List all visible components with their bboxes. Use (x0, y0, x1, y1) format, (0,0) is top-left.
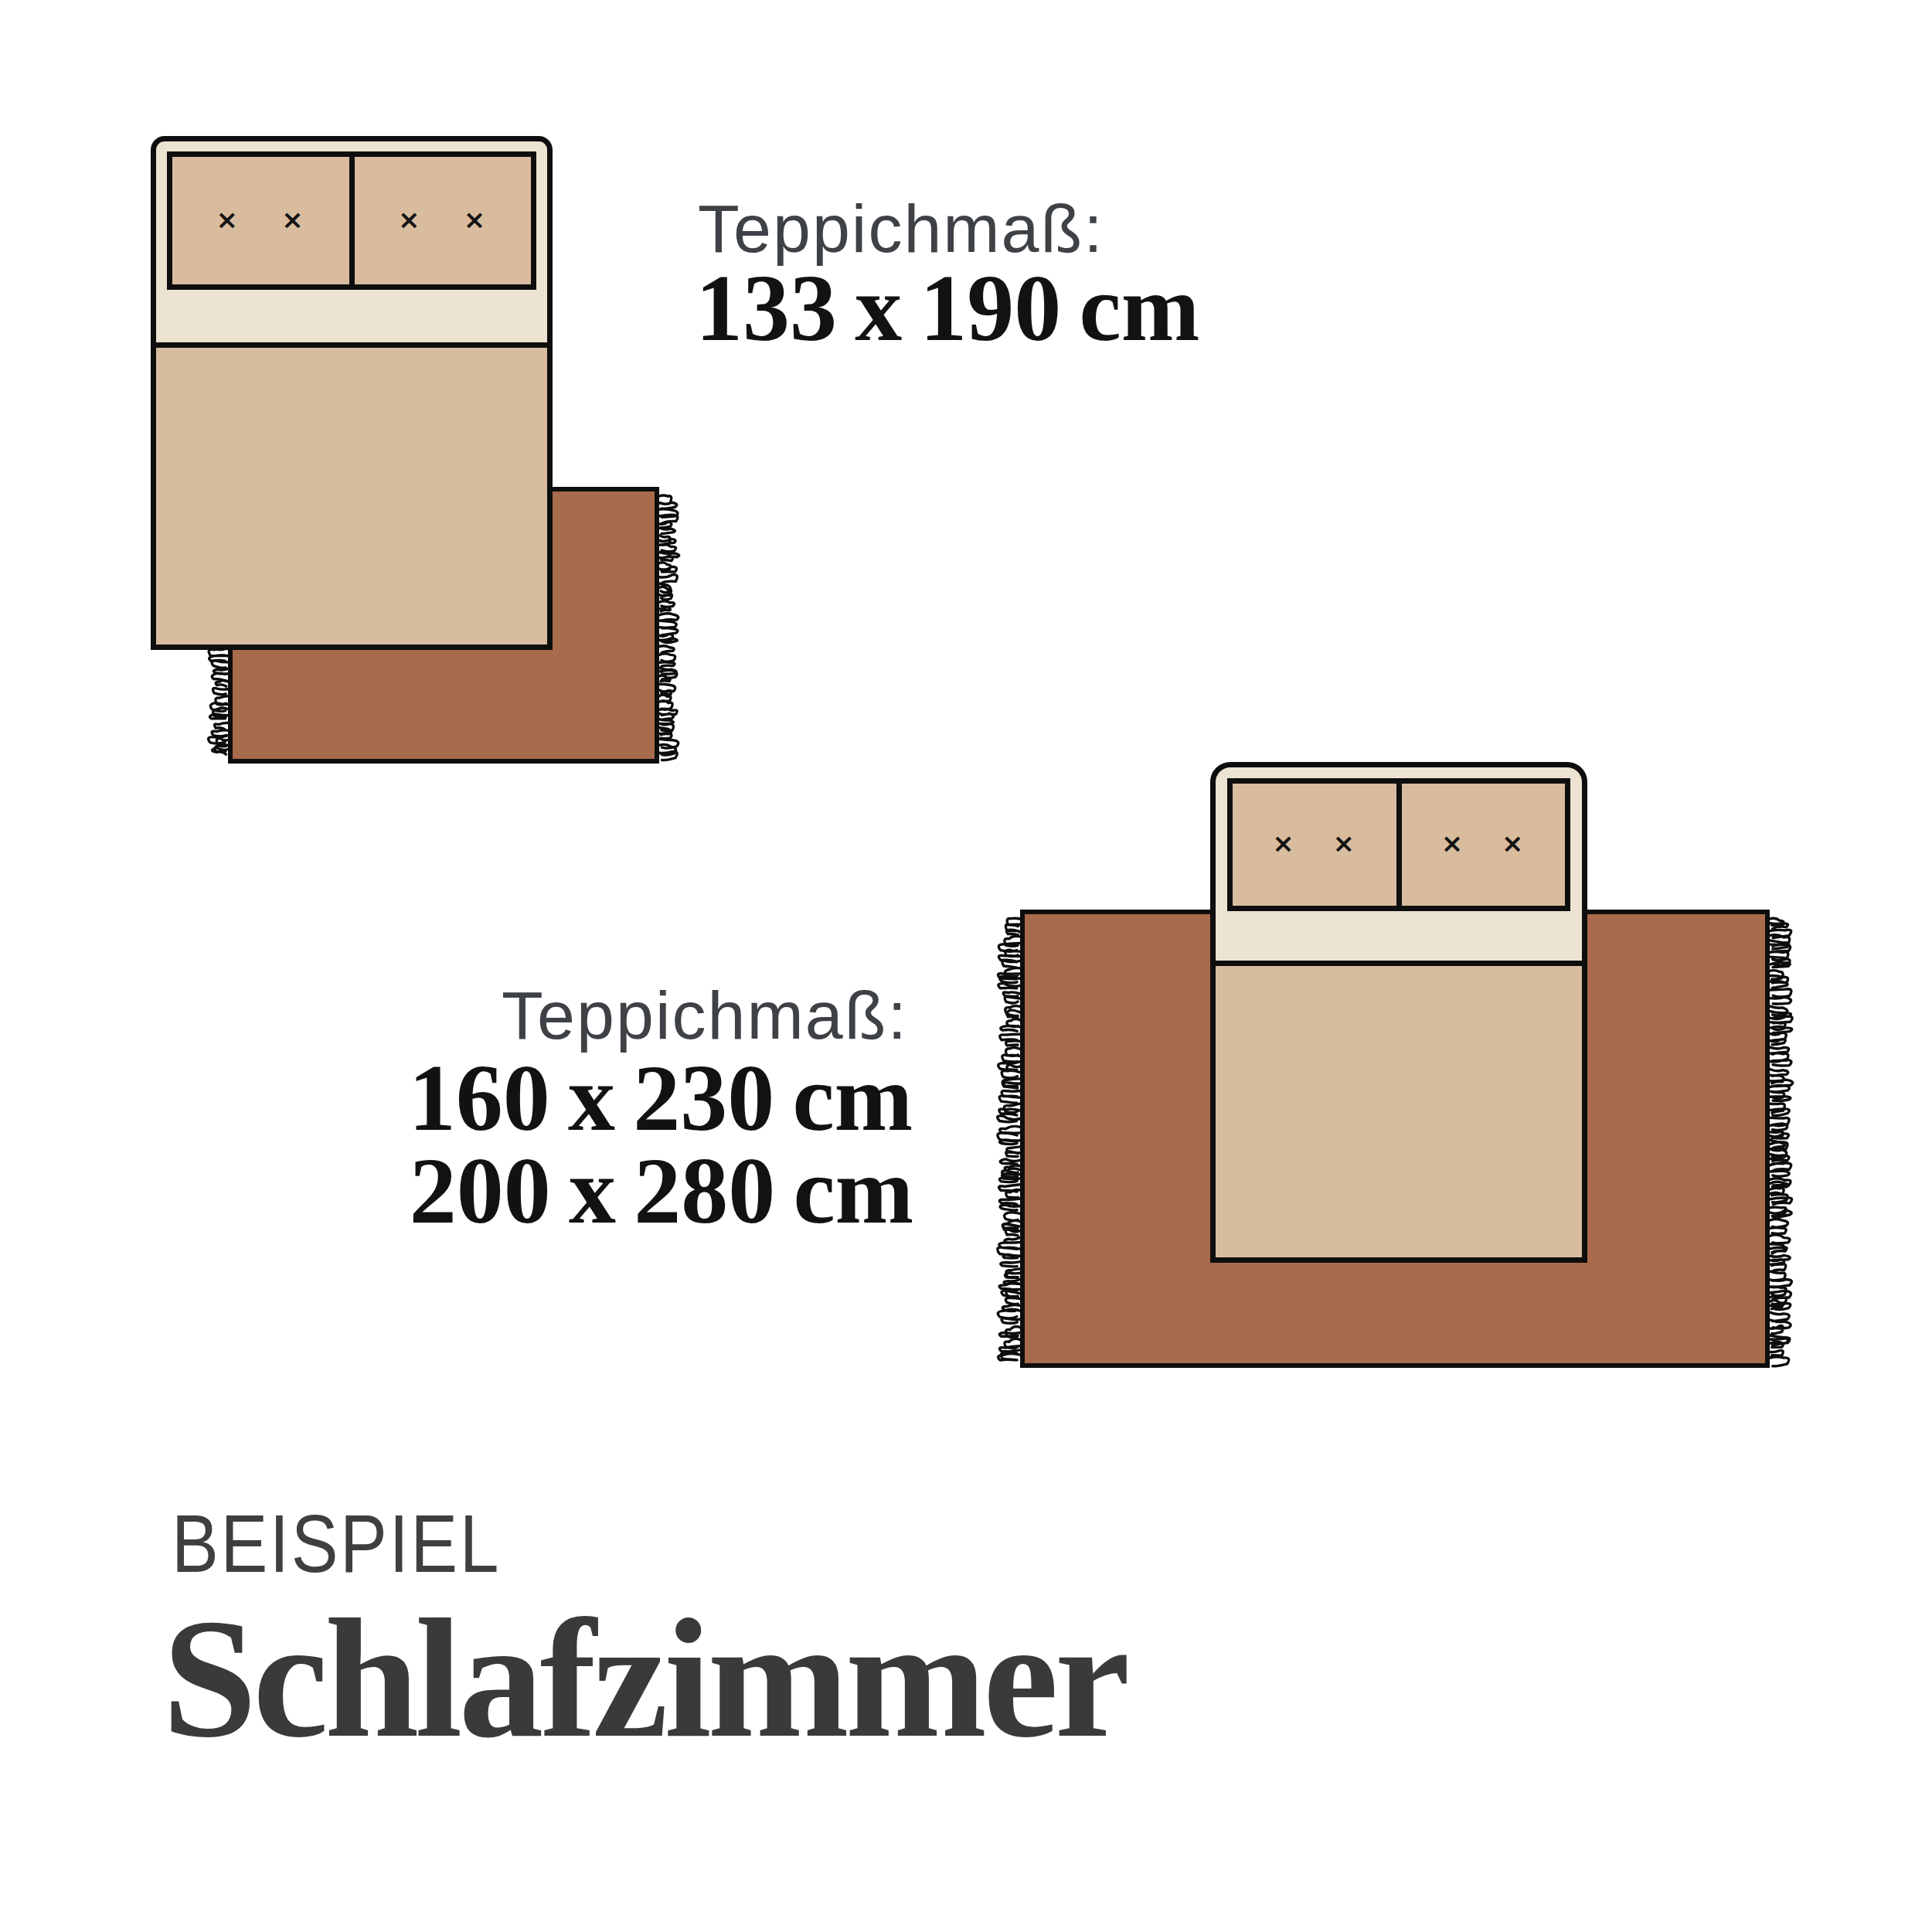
stitch-x-icon: × (1272, 830, 1294, 856)
stitch-x-icon: × (398, 206, 420, 233)
pillow-row: × × × × (167, 151, 536, 290)
sheet-fold (1216, 911, 1582, 961)
rug-size-value-large-1: 160 x 230 cm (409, 1051, 913, 1145)
stitch-x-icon: × (216, 206, 239, 233)
stitch-x-icon: × (281, 206, 304, 233)
pillow-right: × × (1396, 778, 1571, 911)
pillow-left: × × (1227, 778, 1402, 911)
bed-small: × × × × (151, 136, 553, 650)
rug-size-infographic: × × × × Teppichmaß: 133 x 190 cm × (0, 0, 1932, 1932)
duvet (156, 342, 547, 645)
rug-size-value-large-2: 200 x 280 cm (410, 1144, 913, 1238)
rug-fringe-right-icon (659, 492, 679, 759)
example-eyebrow: BEISPIEL (172, 1502, 501, 1584)
sheet-fold (156, 290, 547, 342)
rug-size-label-large: Teppichmaß: (502, 981, 908, 1049)
pillow-left: × × (167, 151, 355, 290)
room-title: Schlafzimmer (162, 1594, 1126, 1764)
stitch-x-icon: × (1441, 830, 1464, 856)
duvet (1216, 961, 1582, 1257)
stitch-x-icon: × (1333, 830, 1355, 856)
rug-size-label-small: Teppichmaß: (698, 195, 1104, 263)
rug-size-value-small: 133 x 190 cm (696, 261, 1199, 355)
bed-large: × × × × (1210, 762, 1587, 1263)
pillow-right: × × (349, 151, 537, 290)
stitch-x-icon: × (464, 206, 486, 233)
pillow-row: × × × × (1227, 778, 1570, 911)
rug-fringe-right-icon (1770, 914, 1793, 1363)
stitch-x-icon: × (1502, 830, 1524, 856)
rug-fringe-left-icon (997, 914, 1020, 1363)
